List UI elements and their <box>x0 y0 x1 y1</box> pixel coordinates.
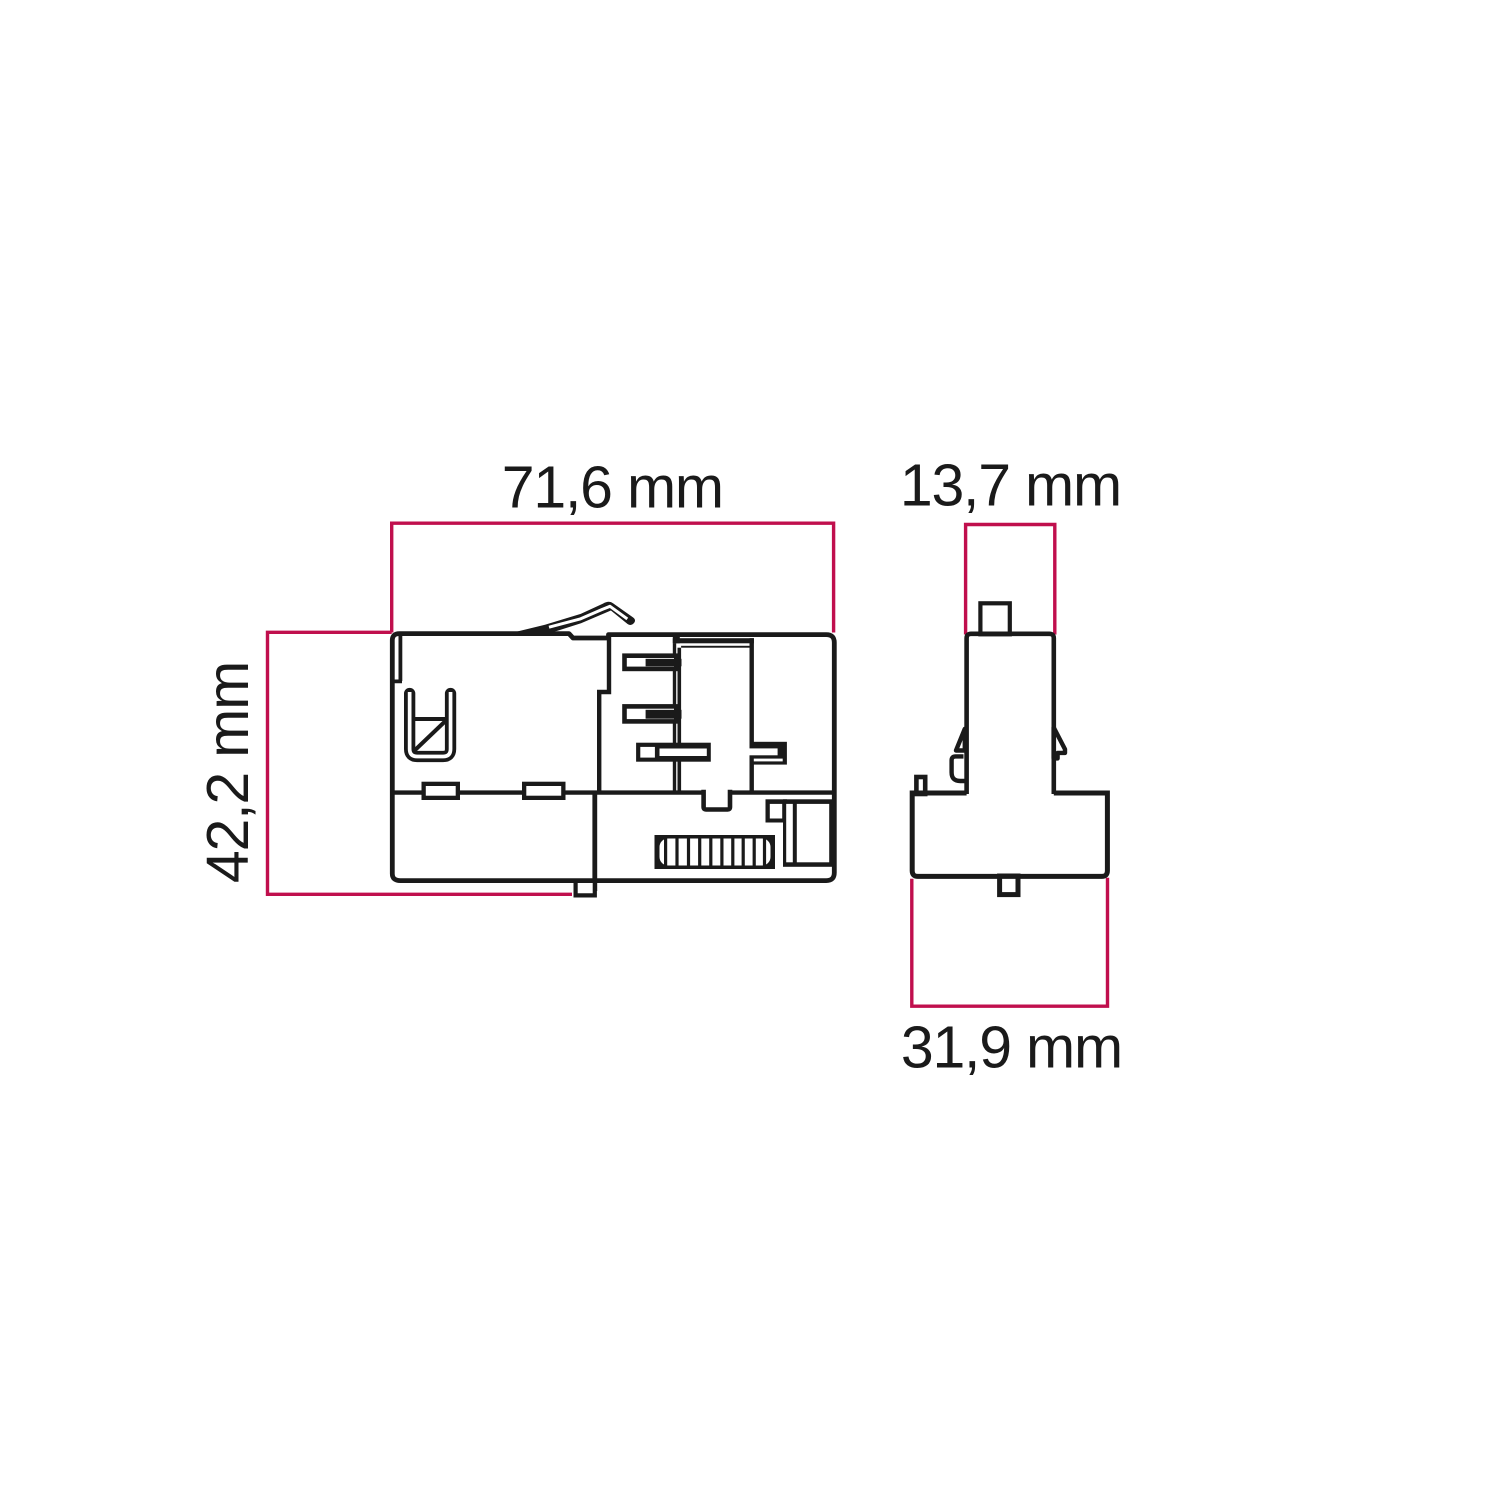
svg-text:71,6 mm: 71,6 mm <box>502 454 723 520</box>
svg-text:31,9 mm: 31,9 mm <box>901 1015 1122 1081</box>
svg-text:13,7 mm: 13,7 mm <box>900 453 1121 519</box>
svg-text:42,2 mm: 42,2 mm <box>195 662 261 883</box>
